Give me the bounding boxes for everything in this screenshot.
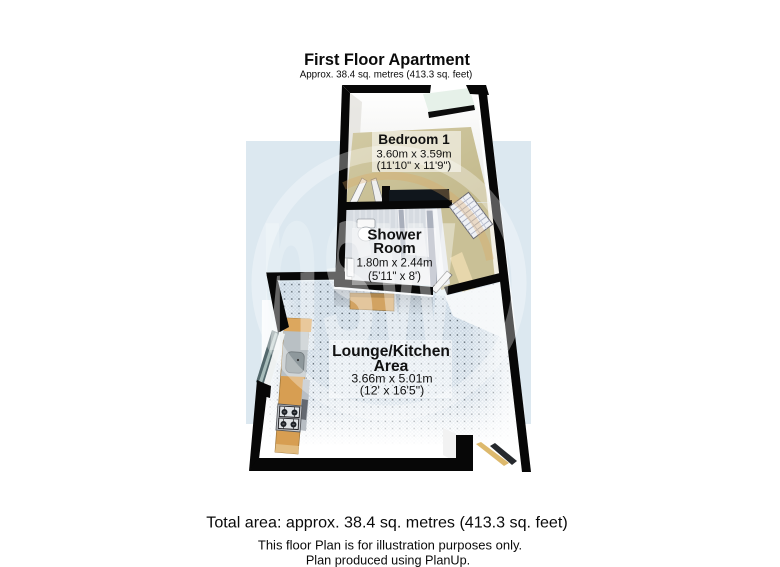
svg-text:Approx. 38.4 sq. metres (413.3: Approx. 38.4 sq. metres (413.3 sq. feet) bbox=[300, 70, 473, 81]
svg-text:First Floor Apartment: First Floor Apartment bbox=[304, 51, 470, 69]
svg-text:(5'11" x 8'): (5'11" x 8') bbox=[368, 271, 421, 283]
svg-text:3.60m x 3.59m: 3.60m x 3.59m bbox=[376, 149, 451, 161]
svg-text:(12' x 16'5"): (12' x 16'5") bbox=[360, 384, 424, 398]
svg-text:Bedroom 1: Bedroom 1 bbox=[378, 132, 450, 147]
svg-text:Plan produced using PlanUp.: Plan produced using PlanUp. bbox=[306, 554, 470, 567]
svg-text:1.80m x 2.44m: 1.80m x 2.44m bbox=[356, 258, 432, 270]
svg-text:(11'10" x 11'9"): (11'10" x 11'9") bbox=[377, 160, 452, 172]
svg-text:This floor Plan is for illustr: This floor Plan is for illustration purp… bbox=[258, 538, 522, 553]
svg-text:Total area: approx. 38.4 sq. m: Total area: approx. 38.4 sq. metres (413… bbox=[206, 514, 567, 532]
svg-text:Room: Room bbox=[373, 240, 416, 257]
